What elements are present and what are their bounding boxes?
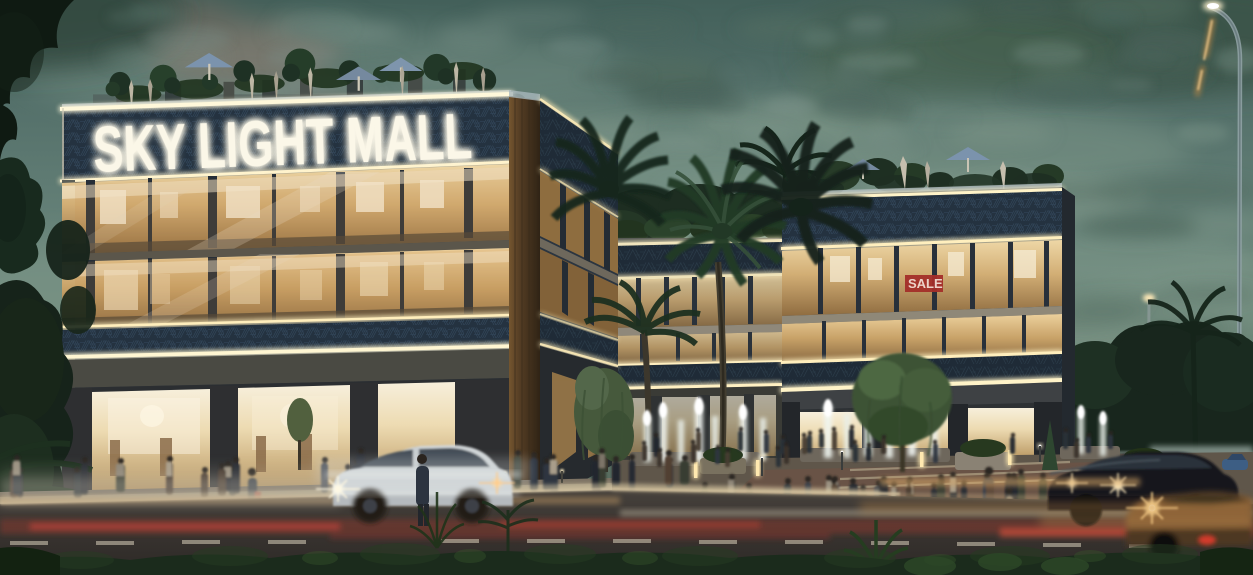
svg-text:SALE: SALE [908,276,943,291]
